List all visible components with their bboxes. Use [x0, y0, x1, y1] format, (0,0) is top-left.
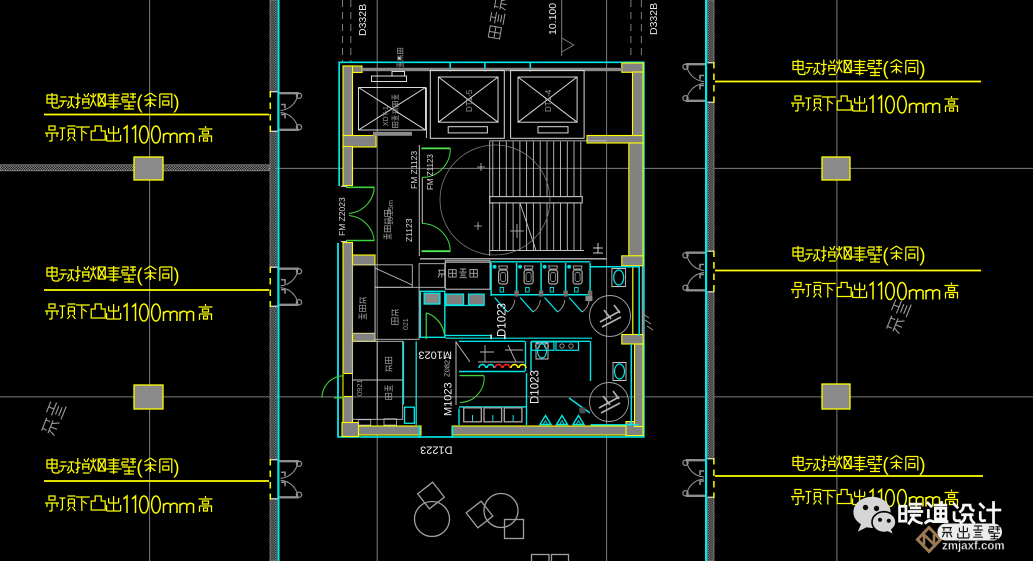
svg-text:FM Z1123: FM Z1123 [409, 151, 419, 189]
svg-text:Z0821: Z0821 [443, 356, 452, 377]
svg-text:D1023: D1023 [530, 370, 542, 404]
svg-text:FM Z1123: FM Z1123 [426, 154, 435, 190]
svg-text:FM Z2023: FM Z2023 [337, 197, 347, 236]
svg-text:): ) [173, 458, 179, 479]
svg-text:DT1-5: DT1-5 [465, 89, 474, 112]
svg-text:M1023: M1023 [443, 382, 455, 416]
svg-text:): ) [919, 455, 925, 476]
svg-text:DT1-4: DT1-4 [544, 89, 553, 112]
svg-text:0921: 0921 [355, 379, 364, 396]
svg-text:(: ( [136, 266, 143, 287]
svg-text:(: ( [882, 455, 889, 476]
svg-text:): ) [173, 266, 179, 287]
svg-text:Z1123: Z1123 [404, 218, 414, 242]
svg-text:zmjaxf.com: zmjaxf.com [942, 541, 1005, 553]
svg-text:(: ( [136, 458, 143, 479]
svg-text:): ) [919, 246, 925, 267]
svg-text:D332B: D332B [648, 3, 660, 35]
svg-text:XDT-1: XDT-1 [383, 106, 390, 126]
svg-text:): ) [919, 59, 925, 80]
svg-text:): ) [173, 93, 179, 114]
svg-text:(: ( [136, 93, 143, 114]
svg-text:10.100: 10.100 [547, 3, 559, 35]
svg-text:D1223: D1223 [420, 444, 452, 456]
svg-text:10.25m: 10.25m [386, 200, 395, 225]
svg-text:D1023: D1023 [497, 303, 509, 337]
svg-text:D332B: D332B [357, 4, 369, 36]
svg-text:(: ( [882, 59, 889, 80]
svg-text:021: 021 [403, 318, 410, 330]
svg-text:(: ( [882, 246, 889, 267]
